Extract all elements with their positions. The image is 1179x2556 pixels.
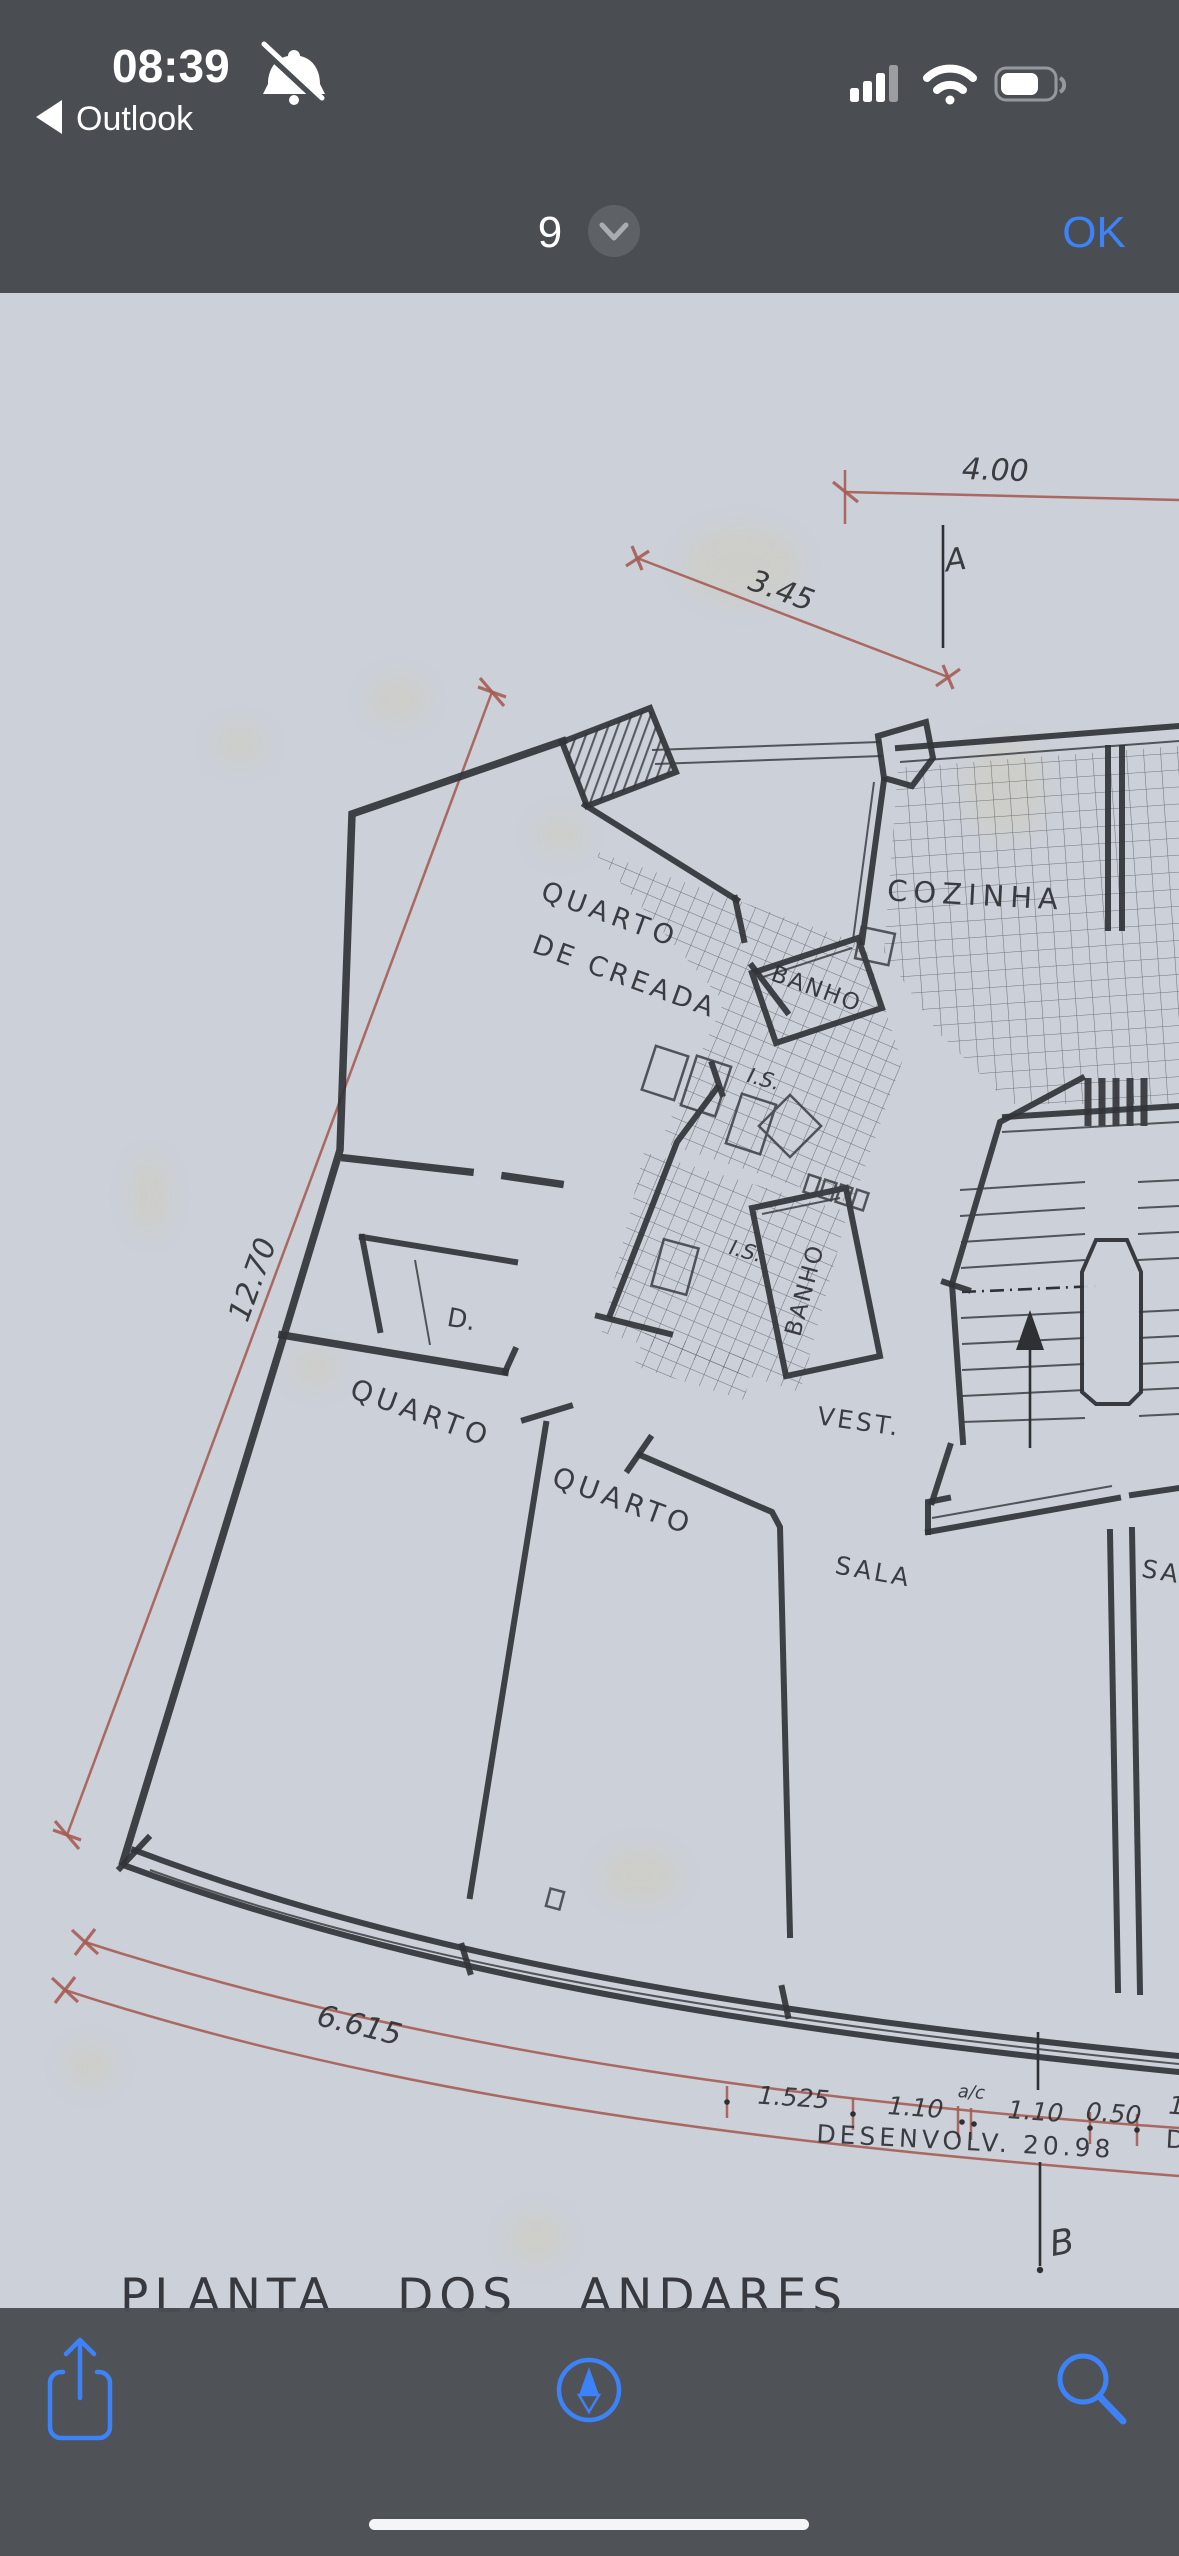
toolbar-background — [0, 2308, 1179, 2556]
room-label-closet: D. — [445, 1303, 478, 1337]
dimension-seg-3: 1.10 — [1007, 2095, 1065, 2128]
dimension-seg-note: a/c — [957, 2081, 985, 2104]
back-app-label: Outlook — [76, 100, 194, 138]
stair-newel — [1082, 1240, 1141, 1404]
back-to-app-button[interactable]: Outlook — [36, 100, 194, 138]
dimension-top: 4.00 — [961, 452, 1029, 489]
dimension-seg-2: 1.10 — [887, 2091, 945, 2124]
status-time: 08:39 — [112, 40, 230, 92]
dimension-right-edge-partial: D — [1165, 2125, 1179, 2155]
page-number: 9 — [538, 208, 562, 257]
footer-toolbar — [0, 2308, 1179, 2556]
floorplan-scan: QUARTO DE CREADA BANHO I.S. I.S. BANHO C… — [0, 180, 1179, 2556]
ok-button[interactable]: OK — [1062, 208, 1126, 257]
home-indicator[interactable] — [369, 2519, 809, 2530]
dimension-seg-4: 0.50 — [1085, 2097, 1143, 2130]
page-selector-button[interactable] — [588, 205, 640, 257]
iphone-screen: QUARTO DE CREADA BANHO I.S. I.S. BANHO C… — [0, 0, 1179, 2556]
screenshot-canvas: QUARTO DE CREADA BANHO I.S. I.S. BANHO C… — [0, 0, 1179, 2556]
dimension-seg-partial: 1 — [1168, 2091, 1179, 2121]
header-chrome: 08:39 Outlook — [0, 0, 1179, 293]
dimension-seg-1: 1.525 — [757, 2081, 830, 2115]
